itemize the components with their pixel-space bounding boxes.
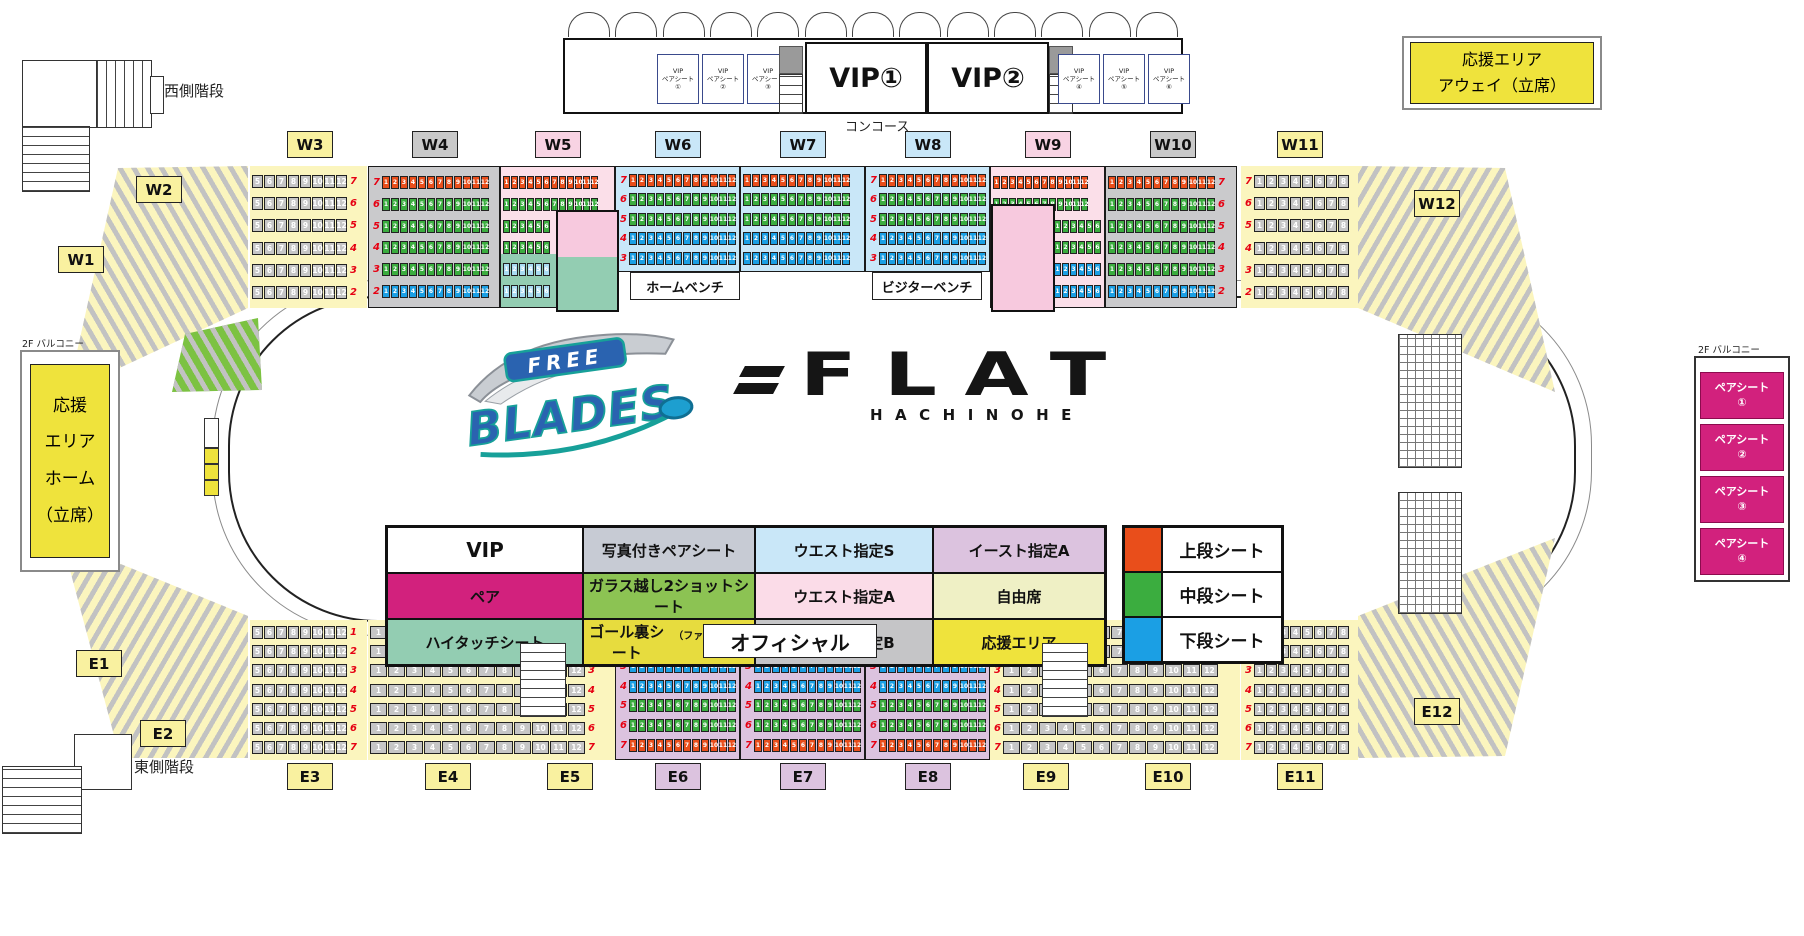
seat: 6 bbox=[460, 722, 477, 735]
seat: 6 bbox=[674, 213, 682, 226]
seat: 7 bbox=[933, 174, 941, 187]
seat: 3 bbox=[647, 739, 655, 752]
seat: 4 bbox=[906, 739, 914, 752]
seat: 2 bbox=[1117, 176, 1125, 189]
seat: 7 bbox=[683, 213, 691, 226]
seat: 2 bbox=[1021, 703, 1038, 716]
seat: 1 bbox=[370, 722, 387, 735]
seat: 8 bbox=[288, 741, 299, 754]
seat: 4 bbox=[527, 198, 534, 211]
seat: 7 bbox=[1326, 664, 1337, 677]
roof-arc bbox=[994, 12, 1036, 37]
seat: 4 bbox=[656, 719, 664, 732]
seat: 7 bbox=[478, 722, 495, 735]
seat-row: 567891011125 bbox=[250, 219, 367, 232]
seat: 10 bbox=[575, 198, 582, 211]
seat: 6 bbox=[460, 684, 477, 697]
seat: 6 bbox=[264, 645, 275, 658]
seat-row: 3123456789101112 bbox=[866, 252, 989, 265]
seat: 8 bbox=[1129, 703, 1146, 716]
seat: 12 bbox=[728, 739, 736, 752]
seat: 4 bbox=[656, 174, 664, 187]
seat: 10 bbox=[1189, 198, 1197, 211]
seat: 5 bbox=[535, 285, 542, 298]
seat: 5 bbox=[252, 645, 263, 658]
seat-row: 4123456789101112 bbox=[616, 232, 739, 245]
seat: 1 bbox=[879, 719, 887, 732]
seat: 12 bbox=[853, 719, 861, 732]
seat: 9 bbox=[300, 703, 311, 716]
seat-row: 4123456789101112 bbox=[866, 232, 989, 245]
seat: 1 bbox=[879, 252, 887, 265]
seat: 11 bbox=[324, 219, 335, 232]
seat: 11 bbox=[969, 232, 977, 245]
seat: 1 bbox=[879, 193, 887, 206]
seat: 12 bbox=[336, 645, 347, 658]
seat: 11 bbox=[719, 699, 727, 712]
seat: 5 bbox=[779, 232, 787, 245]
seat: 7 bbox=[683, 699, 691, 712]
seat-row: 567891011126 bbox=[250, 722, 367, 735]
row-number: 2 bbox=[350, 287, 357, 298]
seat: 5 bbox=[1086, 220, 1093, 233]
seat: 8 bbox=[692, 739, 700, 752]
seat: 6 bbox=[924, 699, 932, 712]
seat: 2 bbox=[1266, 242, 1277, 255]
seat: 10 bbox=[960, 193, 968, 206]
seat: 10 bbox=[312, 722, 323, 735]
seat: 6 bbox=[799, 699, 807, 712]
seat: 10 bbox=[960, 680, 968, 693]
box-structure bbox=[74, 734, 132, 790]
seat: 5 bbox=[915, 719, 923, 732]
seat: 6 bbox=[924, 680, 932, 693]
seat: 7 bbox=[1162, 263, 1170, 276]
seat: 11 bbox=[844, 739, 852, 752]
seat: 4 bbox=[409, 198, 417, 211]
seat: 2 bbox=[1266, 175, 1277, 188]
vip-pair-seat-text: ⑥ bbox=[1166, 83, 1172, 91]
seat: 6 bbox=[924, 174, 932, 187]
seat: 1 bbox=[382, 241, 390, 254]
seat: 7 bbox=[1326, 703, 1337, 716]
row-number: 5 bbox=[350, 704, 357, 715]
seat: 5 bbox=[665, 680, 673, 693]
seat: 3 bbox=[647, 719, 655, 732]
seat: 5 bbox=[665, 699, 673, 712]
section-label-W1: W1 bbox=[58, 246, 104, 273]
seat: 5 bbox=[252, 626, 263, 639]
seat: 7 bbox=[933, 193, 941, 206]
seat: 2 bbox=[888, 680, 896, 693]
seat: 5 bbox=[779, 213, 787, 226]
seat: 9 bbox=[951, 174, 959, 187]
seat: 6 bbox=[1094, 220, 1101, 233]
seat: 5 bbox=[1302, 626, 1313, 639]
seat: 6 bbox=[674, 699, 682, 712]
seat: 6 bbox=[1153, 263, 1161, 276]
seat: 7 bbox=[933, 699, 941, 712]
vip-pair-seat-text: VIP bbox=[1074, 67, 1084, 75]
section-label-W2: W2 bbox=[136, 176, 182, 203]
seat: 5 bbox=[1302, 684, 1313, 697]
seat: 8 bbox=[942, 719, 950, 732]
seat: 8 bbox=[288, 197, 299, 210]
seat: 5 bbox=[915, 680, 923, 693]
seat: 3 bbox=[1278, 703, 1289, 716]
seat: 9 bbox=[826, 699, 834, 712]
seat: 9 bbox=[514, 722, 531, 735]
seat: 7 bbox=[1111, 684, 1128, 697]
seat: 5 bbox=[1144, 285, 1152, 298]
seat-block-w7: 1234567891011121234567891011121234567891… bbox=[740, 166, 865, 272]
seat: 6 bbox=[543, 285, 550, 298]
seat-row: 123456789101112 bbox=[741, 213, 864, 226]
seat: 2 bbox=[511, 176, 518, 189]
seat: 7 bbox=[1326, 175, 1337, 188]
seat: 6 bbox=[264, 264, 275, 277]
seat-row: 1234567891011123 bbox=[1106, 263, 1236, 276]
seat: 4 bbox=[1135, 198, 1143, 211]
seat: 6 bbox=[1314, 664, 1325, 677]
seat: 7 bbox=[683, 719, 691, 732]
row-number: 7 bbox=[1245, 176, 1252, 187]
seat: 12 bbox=[568, 684, 585, 697]
seat: 6 bbox=[427, 198, 435, 211]
seat: 5 bbox=[1075, 722, 1092, 735]
seat: 7 bbox=[276, 645, 287, 658]
seat: 4 bbox=[1057, 741, 1074, 754]
seat: 7 bbox=[933, 680, 941, 693]
seat-row: 5123456789101112 bbox=[990, 703, 1240, 716]
seat: 11 bbox=[1183, 741, 1200, 754]
seat: 9 bbox=[701, 252, 709, 265]
seat-row: 412345678 bbox=[1241, 684, 1358, 697]
seat: 8 bbox=[288, 684, 299, 697]
section-label-E2: E2 bbox=[140, 720, 186, 747]
seat: 5 bbox=[418, 198, 426, 211]
seat: 11 bbox=[1183, 684, 1200, 697]
seat: 9 bbox=[951, 232, 959, 245]
seat: 1 bbox=[1254, 242, 1265, 255]
seat: 7 bbox=[1326, 197, 1337, 210]
seat: 8 bbox=[288, 626, 299, 639]
seat: 2 bbox=[1117, 263, 1125, 276]
seat: 12 bbox=[978, 174, 986, 187]
seat: 7 bbox=[436, 176, 444, 189]
seat: 8 bbox=[1338, 645, 1349, 658]
roof-arc bbox=[663, 12, 705, 37]
seat: 3 bbox=[1278, 175, 1289, 188]
seat-block-e7: 3123456789101112412345678910111251234567… bbox=[740, 652, 865, 760]
seat: 4 bbox=[424, 741, 441, 754]
roof-arc bbox=[1089, 12, 1131, 37]
seat: 2 bbox=[752, 174, 760, 187]
seat: 12 bbox=[853, 699, 861, 712]
vip-pair-seat-text: VIP bbox=[718, 67, 728, 75]
row-number: 5 bbox=[870, 700, 877, 711]
pair-seat-label: ペアシート bbox=[1715, 433, 1770, 447]
seat: 11 bbox=[583, 198, 590, 211]
seat: 1 bbox=[993, 176, 1000, 189]
seat: 5 bbox=[418, 263, 426, 276]
flat-text: FLAT bbox=[800, 340, 1134, 410]
pair-seat-label: ペアシート bbox=[1715, 485, 1770, 499]
vip-pair-seat-text: ペアシート bbox=[1108, 75, 1140, 83]
stair-cell bbox=[204, 448, 219, 464]
seat: 8 bbox=[288, 175, 299, 188]
seat: 2 bbox=[1062, 285, 1069, 298]
seat: 9 bbox=[815, 232, 823, 245]
seat: 5 bbox=[252, 684, 263, 697]
row-number: 6 bbox=[373, 199, 380, 210]
seat: 12 bbox=[728, 232, 736, 245]
seat-row: 123456789101112 bbox=[501, 198, 614, 211]
seat: 6 bbox=[1093, 703, 1110, 716]
seat: 5 bbox=[442, 684, 459, 697]
seat: 12 bbox=[336, 242, 347, 255]
seat: 6 bbox=[1153, 241, 1161, 254]
seat: 8 bbox=[445, 285, 453, 298]
room-east-pink bbox=[991, 204, 1055, 312]
seat: 10 bbox=[312, 664, 323, 677]
seat: 7 bbox=[1111, 741, 1128, 754]
seat: 4 bbox=[656, 232, 664, 245]
legend-label: VIP bbox=[466, 538, 504, 562]
seat: 11 bbox=[324, 741, 335, 754]
seat: 4 bbox=[1290, 286, 1301, 299]
seat: 3 bbox=[1278, 242, 1289, 255]
seat-block-e8: 3123456789101112412345678910111251234567… bbox=[865, 652, 990, 760]
vip-band: VIPペアシート①VIPペアシート②VIPペアシート③ VIP① VIP② VI… bbox=[563, 38, 1183, 114]
row-number: 7 bbox=[870, 740, 877, 751]
seat: 11 bbox=[969, 719, 977, 732]
seat: 8 bbox=[288, 645, 299, 658]
section-label-E1: E1 bbox=[76, 650, 122, 677]
seat: 6 bbox=[1314, 684, 1325, 697]
seat: 11 bbox=[719, 174, 727, 187]
seat: 2 bbox=[391, 220, 399, 233]
seat: 9 bbox=[1147, 741, 1164, 754]
seat: 5 bbox=[1302, 722, 1313, 735]
seat: 9 bbox=[300, 197, 311, 210]
seat: 10 bbox=[312, 703, 323, 716]
seat-row: 123456789101112 bbox=[741, 174, 864, 187]
home-area-box: 応援 エリア ホーム （立席） bbox=[30, 364, 110, 558]
section-label-W10: W10 bbox=[1150, 131, 1196, 158]
pair-seat-2: ペアシート② bbox=[1700, 424, 1784, 471]
seat: 9 bbox=[300, 242, 311, 255]
seat: 8 bbox=[1171, 220, 1179, 233]
section-label-E5: E5 bbox=[547, 763, 593, 790]
seat: 12 bbox=[336, 741, 347, 754]
section-label-W7: W7 bbox=[780, 131, 826, 158]
vip-pair-seat-text: ① bbox=[675, 83, 681, 91]
seat: 6 bbox=[788, 193, 796, 206]
seat: 11 bbox=[472, 220, 480, 233]
seat: 9 bbox=[951, 213, 959, 226]
seat: 8 bbox=[692, 719, 700, 732]
seat: 12 bbox=[853, 739, 861, 752]
seat: 2 bbox=[1266, 684, 1277, 697]
seat: 11 bbox=[833, 213, 841, 226]
seat: 9 bbox=[300, 264, 311, 277]
vip-pair-seat-text: VIP bbox=[1164, 67, 1174, 75]
seat: 2 bbox=[511, 241, 518, 254]
seat: 8 bbox=[288, 703, 299, 716]
seat: 6 bbox=[543, 176, 550, 189]
seat: 9 bbox=[1057, 198, 1064, 211]
seat: 5 bbox=[442, 741, 459, 754]
seat: 6 bbox=[264, 242, 275, 255]
seat: 11 bbox=[1198, 241, 1206, 254]
seat: 10 bbox=[710, 739, 718, 752]
seat-row: 123456789101112 bbox=[741, 232, 864, 245]
seat: 10 bbox=[710, 719, 718, 732]
seat: 3 bbox=[647, 699, 655, 712]
seat: 9 bbox=[454, 241, 462, 254]
seat: 7 bbox=[276, 242, 287, 255]
seat: 12 bbox=[842, 232, 850, 245]
seat: 12 bbox=[481, 220, 489, 233]
seat: 4 bbox=[906, 699, 914, 712]
seat: 6 bbox=[1314, 703, 1325, 716]
seat: 4 bbox=[424, 684, 441, 697]
seat: 9 bbox=[300, 664, 311, 677]
seat: 4 bbox=[906, 719, 914, 732]
section-label-W8: W8 bbox=[905, 131, 951, 158]
seat: 9 bbox=[826, 739, 834, 752]
seat: 7 bbox=[478, 684, 495, 697]
row-number: 4 bbox=[870, 681, 877, 692]
seat: 2 bbox=[638, 680, 646, 693]
seat: 5 bbox=[252, 175, 263, 188]
seat: 10 bbox=[710, 252, 718, 265]
seat: 9 bbox=[300, 626, 311, 639]
seat: 5 bbox=[535, 220, 542, 233]
seat: 1 bbox=[1254, 703, 1265, 716]
tier-swatch-3 bbox=[1124, 617, 1162, 662]
seat: 7 bbox=[436, 285, 444, 298]
seat: 5 bbox=[665, 174, 673, 187]
seat: 2 bbox=[888, 252, 896, 265]
seat: 2 bbox=[388, 741, 405, 754]
seat: 7 bbox=[1162, 285, 1170, 298]
seat: 9 bbox=[815, 193, 823, 206]
seat: 10 bbox=[835, 739, 843, 752]
row-number: 6 bbox=[1245, 198, 1252, 209]
seat: 6 bbox=[1094, 263, 1101, 276]
seat: 8 bbox=[445, 241, 453, 254]
seat: 5 bbox=[1302, 664, 1313, 677]
seat-row: 7123456789101112 bbox=[866, 739, 989, 752]
seat: 6 bbox=[1153, 285, 1161, 298]
seat: 3 bbox=[400, 241, 408, 254]
seat: 1 bbox=[1254, 197, 1265, 210]
seat: 4 bbox=[1078, 241, 1085, 254]
legend-label: 写真付きペアシート bbox=[602, 540, 736, 561]
seat: 7 bbox=[808, 719, 816, 732]
seat: 11 bbox=[550, 741, 567, 754]
seat: 10 bbox=[1189, 285, 1197, 298]
seat: 11 bbox=[1198, 220, 1206, 233]
seat: 4 bbox=[527, 285, 534, 298]
seat: 9 bbox=[701, 699, 709, 712]
seat: 10 bbox=[1165, 684, 1182, 697]
seat: 1 bbox=[1003, 722, 1020, 735]
seat: 7 bbox=[933, 232, 941, 245]
seat: 10 bbox=[1165, 703, 1182, 716]
glass-room-west-lower bbox=[558, 257, 617, 310]
seat-row: 567891011125 bbox=[250, 703, 367, 716]
seat: 3 bbox=[1278, 264, 1289, 277]
vip-room-2: VIP② bbox=[927, 42, 1049, 114]
seat: 1 bbox=[1108, 176, 1116, 189]
seat: 9 bbox=[1057, 176, 1064, 189]
seat-row: 6123456789101112 bbox=[990, 722, 1240, 735]
section-label-E4: E4 bbox=[425, 763, 471, 790]
seat: 4 bbox=[409, 220, 417, 233]
vip-pair-seat-6: VIPペアシート⑥ bbox=[1148, 54, 1190, 104]
seat: 3 bbox=[1278, 197, 1289, 210]
seat: 11 bbox=[324, 264, 335, 277]
seat: 11 bbox=[472, 198, 480, 211]
roof-arc bbox=[710, 12, 752, 37]
seat: 2 bbox=[888, 213, 896, 226]
seat: 3 bbox=[519, 285, 526, 298]
seat-row: 1234567891011125 bbox=[368, 703, 615, 716]
seat: 11 bbox=[719, 719, 727, 732]
seat: 9 bbox=[701, 680, 709, 693]
row-number: 7 bbox=[350, 176, 357, 187]
seat: 5 bbox=[1144, 220, 1152, 233]
seat: 7 bbox=[933, 252, 941, 265]
seat: 10 bbox=[532, 722, 549, 735]
vip-pair-seat-text: ② bbox=[720, 83, 726, 91]
section-label-W11: W11 bbox=[1277, 131, 1323, 158]
seat: 8 bbox=[1171, 241, 1179, 254]
seat: 2 bbox=[888, 739, 896, 752]
seat: 6 bbox=[264, 197, 275, 210]
vip-pair-seat-5: VIPペアシート⑤ bbox=[1103, 54, 1145, 104]
seat: 7 bbox=[683, 193, 691, 206]
seat: 3 bbox=[1278, 664, 1289, 677]
roof-arc bbox=[757, 12, 799, 37]
seat: 11 bbox=[324, 242, 335, 255]
seat: 12 bbox=[978, 699, 986, 712]
seat: 1 bbox=[1108, 220, 1116, 233]
seat: 3 bbox=[400, 220, 408, 233]
seat: 5 bbox=[1302, 286, 1313, 299]
vip-pair-seat-text: ペアシート bbox=[1063, 75, 1095, 83]
seat: 12 bbox=[728, 680, 736, 693]
row-number: 2 bbox=[373, 286, 380, 297]
seat: 6 bbox=[924, 213, 932, 226]
seat: 5 bbox=[1302, 645, 1313, 658]
vip2-label: VIP② bbox=[951, 63, 1025, 94]
seat: 9 bbox=[1147, 664, 1164, 677]
seat: 11 bbox=[844, 699, 852, 712]
row-number: 6 bbox=[1245, 723, 1252, 734]
seat: 10 bbox=[312, 741, 323, 754]
home-bench-label: ホームベンチ bbox=[646, 277, 724, 296]
row-number: 4 bbox=[745, 681, 752, 692]
seat: 1 bbox=[629, 193, 637, 206]
seat: 9 bbox=[1147, 722, 1164, 735]
row-number: 6 bbox=[620, 194, 627, 205]
seat: 8 bbox=[942, 699, 950, 712]
seat: 12 bbox=[336, 197, 347, 210]
